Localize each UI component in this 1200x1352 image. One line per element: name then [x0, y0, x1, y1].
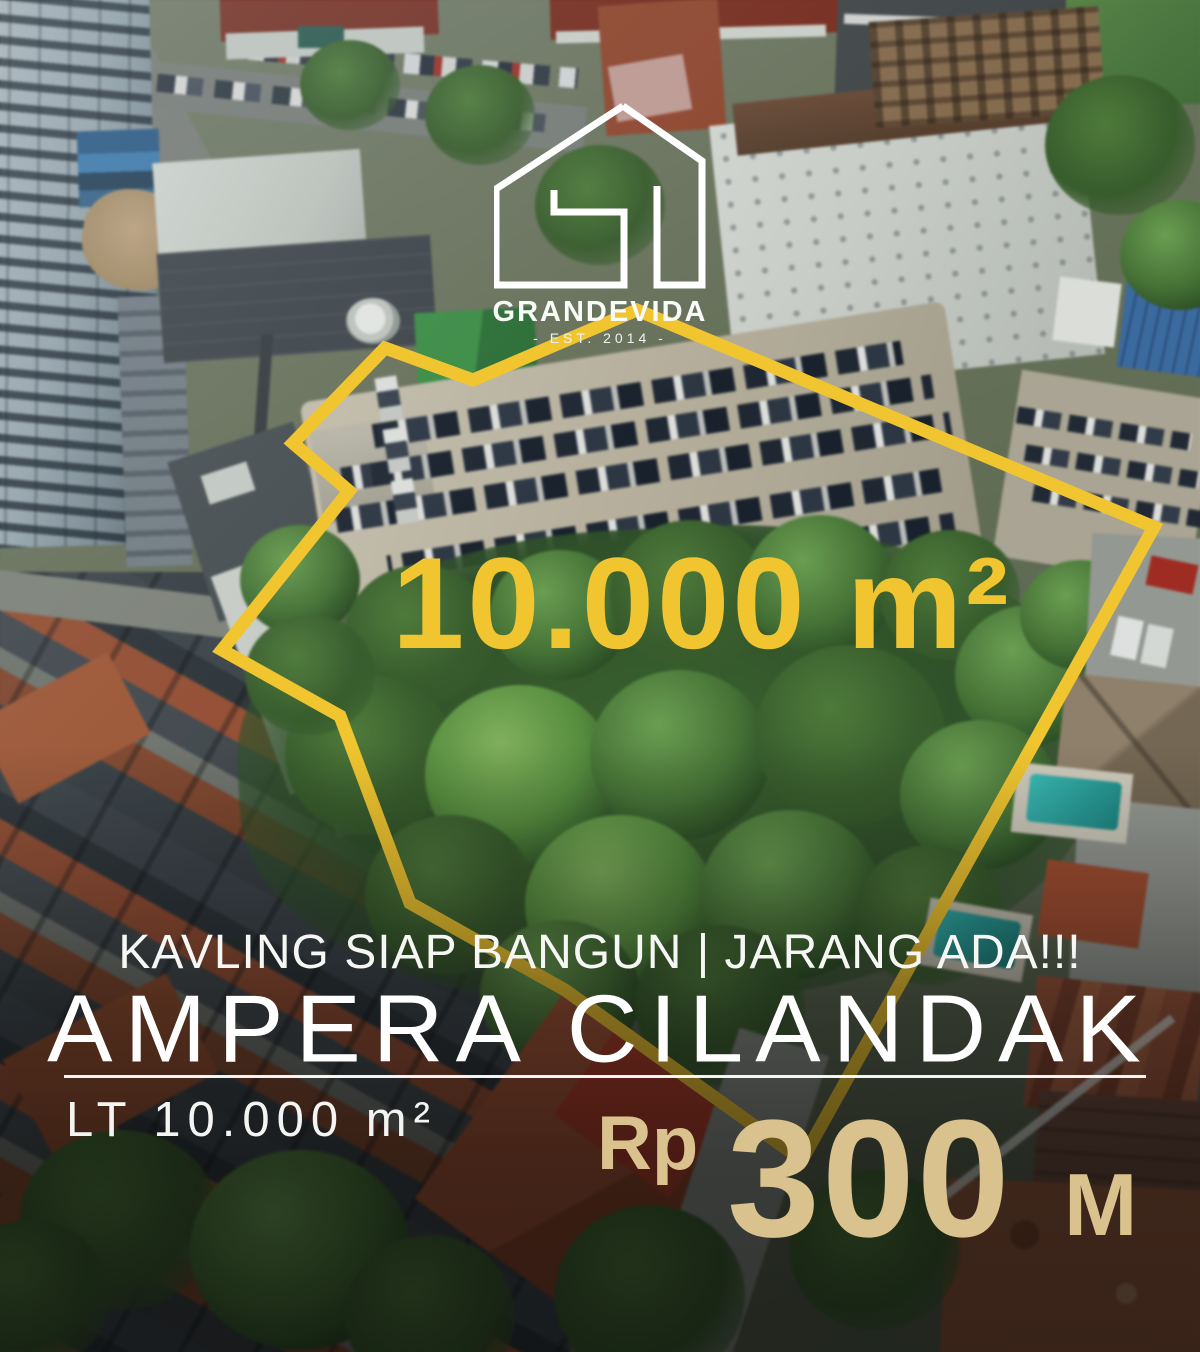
grandevida-house-logo-icon: [494, 84, 706, 289]
tagline: KAVLING SIAP BANGUN | JARANG ADA!!!: [0, 929, 1200, 977]
price-currency: Rp: [597, 1106, 698, 1182]
location-title: AMPERA CILANDAK: [0, 980, 1200, 1076]
brand-established-line: - EST. 2014 -: [0, 330, 1200, 346]
poster-text-layer: GRANDEVIDA - EST. 2014 - 10.000 m² KAVLI…: [0, 0, 1200, 1352]
real-estate-listing-poster: GRANDEVIDA - EST. 2014 - 10.000 m² KAVLI…: [0, 0, 1200, 1352]
land-area-label: 10.000 m²: [392, 538, 1012, 668]
price-amount: 300: [727, 1096, 1012, 1263]
brand-name: GRANDEVIDA: [0, 296, 1200, 329]
price-unit: M: [1064, 1161, 1137, 1249]
divider-line: [64, 1075, 1146, 1078]
land-size-detail: LT 10.000 m²: [66, 1096, 437, 1145]
